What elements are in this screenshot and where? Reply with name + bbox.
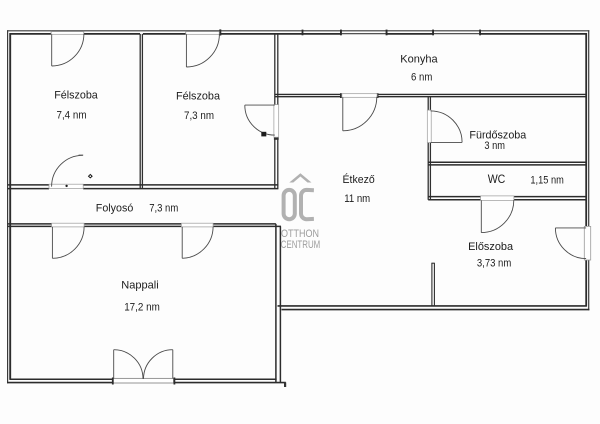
svg-text:7,3 nm: 7,3 nm	[149, 203, 178, 215]
svg-text:Előszoba: Előszoba	[468, 241, 514, 253]
svg-text:CENTRUM: CENTRUM	[281, 239, 320, 251]
svg-text:17,2 nm: 17,2 nm	[124, 302, 160, 314]
svg-text:3 nm: 3 nm	[484, 140, 505, 152]
svg-text:11 nm: 11 nm	[344, 193, 370, 205]
svg-text:Konyha: Konyha	[400, 54, 438, 66]
svg-text:Folyosó: Folyosó	[96, 202, 134, 214]
svg-text:7,4 nm: 7,4 nm	[57, 109, 87, 121]
svg-text:Nappali: Nappali	[121, 280, 158, 292]
svg-text:WC: WC	[488, 172, 506, 186]
svg-text:Félszoba: Félszoba	[54, 90, 98, 102]
svg-text:3,73 nm: 3,73 nm	[477, 258, 511, 270]
svg-text:OTTHON: OTTHON	[281, 228, 319, 240]
svg-text:6 nm: 6 nm	[411, 72, 432, 84]
svg-text:1,15 nm: 1,15 nm	[530, 175, 563, 187]
svg-text:7,3 nm: 7,3 nm	[184, 110, 214, 122]
svg-text:Félszoba: Félszoba	[176, 90, 221, 102]
svg-text:Étkező: Étkező	[343, 173, 375, 186]
